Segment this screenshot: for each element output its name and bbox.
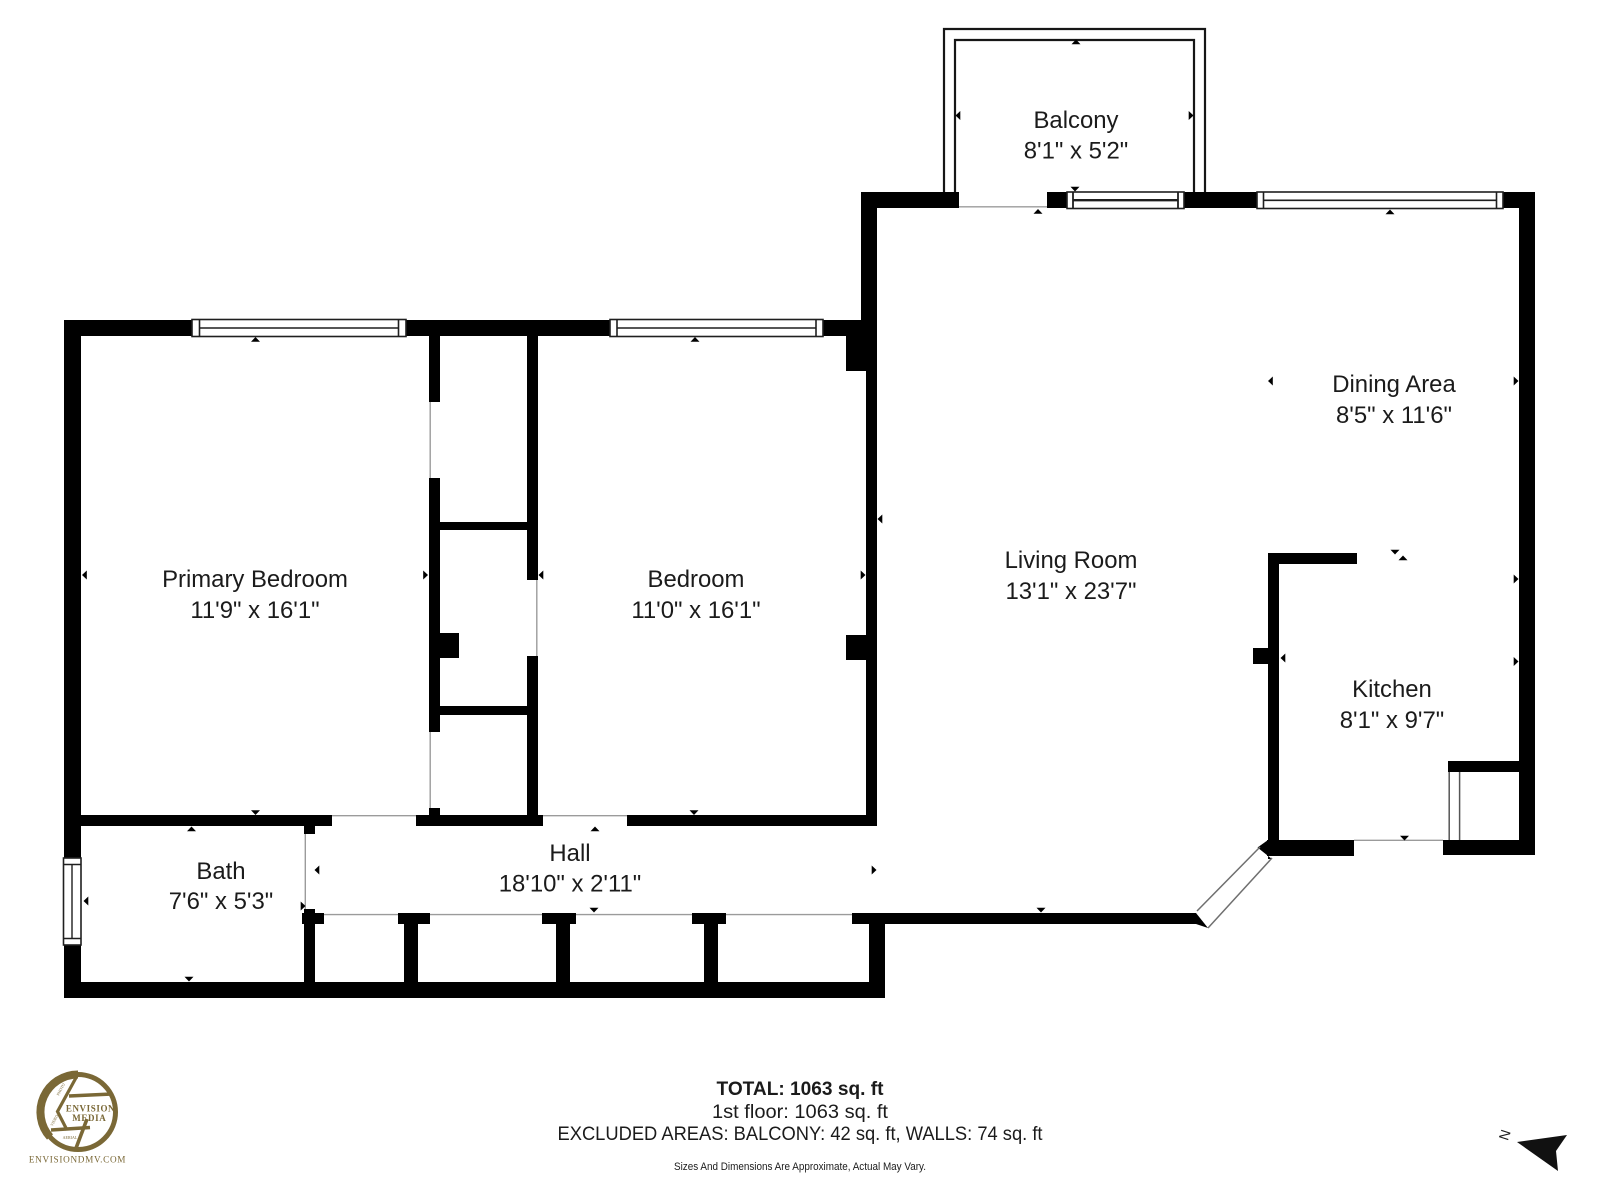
svg-text:Hall: Hall (549, 840, 590, 867)
svg-text:AERIAL: AERIAL (63, 1135, 78, 1140)
svg-text:11'9" x 16'1": 11'9" x 16'1" (190, 597, 319, 624)
svg-text:8'1" x 5'2": 8'1" x 5'2" (1024, 138, 1128, 165)
svg-text:TOTAL: 1063 sq. ft: TOTAL: 1063 sq. ft (717, 1078, 884, 1100)
svg-text:Primary Bedroom: Primary Bedroom (162, 566, 348, 593)
svg-text:8'5" x 11'6": 8'5" x 11'6" (1336, 402, 1452, 429)
svg-text:Bath: Bath (196, 858, 245, 885)
svg-text:Dining Area: Dining Area (1332, 371, 1456, 398)
svg-text:Balcony: Balcony (1034, 107, 1119, 134)
svg-text:ENVISIONDMV.COM: ENVISIONDMV.COM (29, 1154, 126, 1164)
svg-text:7'6" x 5'3": 7'6" x 5'3" (169, 888, 273, 915)
svg-text:ENVISION: ENVISION (66, 1104, 115, 1114)
svg-text:1st floor: 1063 sq. ft: 1st floor: 1063 sq. ft (712, 1101, 889, 1123)
svg-text:Bedroom: Bedroom (648, 566, 745, 593)
svg-text:13'1" x 23'7": 13'1" x 23'7" (1005, 578, 1136, 605)
svg-text:8'1" x 9'7": 8'1" x 9'7" (1340, 707, 1444, 734)
svg-text:EXCLUDED AREAS: BALCONY: 42 sq: EXCLUDED AREAS: BALCONY: 42 sq. ft, WALL… (558, 1124, 1044, 1145)
svg-text:Sizes And Dimensions Are Appro: Sizes And Dimensions Are Approximate, Ac… (674, 1161, 926, 1173)
svg-text:Kitchen: Kitchen (1352, 676, 1432, 703)
svg-text:11'0" x 16'1": 11'0" x 16'1" (631, 597, 760, 624)
svg-text:Living Room: Living Room (1005, 547, 1138, 574)
svg-text:MEDIA: MEDIA (72, 1113, 106, 1123)
svg-text:18'10" x 2'11": 18'10" x 2'11" (499, 871, 642, 898)
